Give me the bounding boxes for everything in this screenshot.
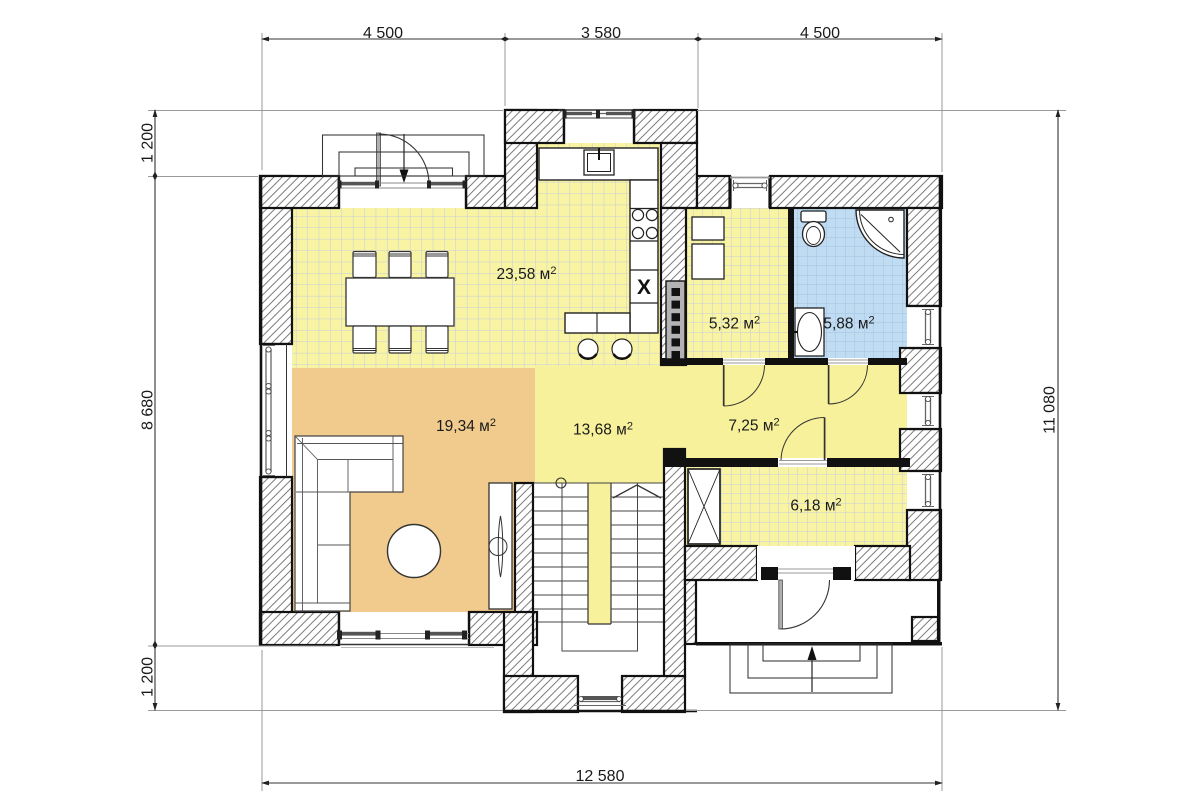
svg-text:8 680: 8 680 — [140, 390, 157, 430]
svg-text:6,18 м2: 6,18 м2 — [790, 497, 841, 515]
svg-text:7,25 м2: 7,25 м2 — [728, 417, 779, 435]
svg-text:4 500: 4 500 — [363, 25, 403, 42]
svg-text:5,32 м2: 5,32 м2 — [709, 315, 760, 333]
svg-text:1 200: 1 200 — [140, 123, 157, 163]
svg-text:23,58 м2: 23,58 м2 — [497, 265, 557, 283]
svg-text:X: X — [637, 276, 651, 299]
svg-text:11 080: 11 080 — [1042, 386, 1059, 434]
svg-text:13,68 м2: 13,68 м2 — [573, 421, 633, 439]
svg-text:19,34 м2: 19,34 м2 — [436, 417, 496, 435]
svg-text:4 500: 4 500 — [800, 25, 840, 42]
svg-text:12 580: 12 580 — [576, 768, 625, 785]
svg-text:5,88 м2: 5,88 м2 — [823, 315, 874, 333]
svg-text:1 200: 1 200 — [140, 657, 157, 697]
svg-text:3 580: 3 580 — [581, 25, 621, 42]
